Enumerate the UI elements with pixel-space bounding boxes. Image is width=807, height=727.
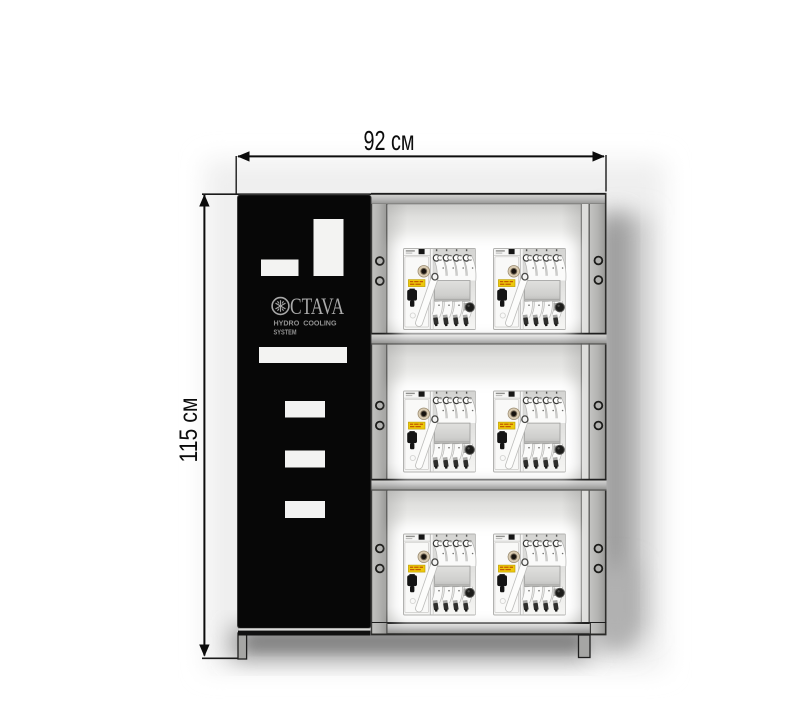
svg-text:92 см: 92 см (364, 125, 415, 156)
svg-text:CTAVA: CTAVA (290, 294, 344, 319)
svg-text:115 см: 115 см (175, 398, 203, 463)
svg-text:HYDRO COOLING: HYDRO COOLING (274, 319, 337, 328)
svg-text:SYSTEM: SYSTEM (274, 328, 297, 337)
